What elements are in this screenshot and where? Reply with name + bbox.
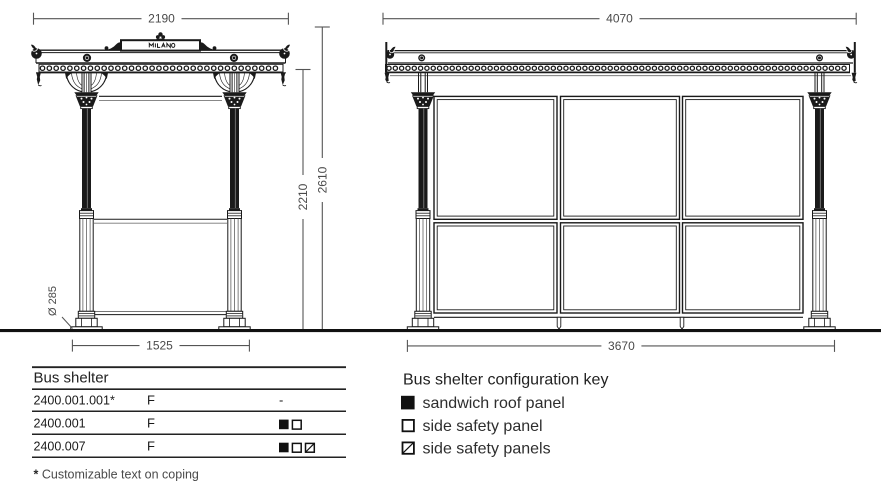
svg-text:Ø 285: Ø 285 <box>47 286 59 316</box>
svg-text:F: F <box>147 416 155 431</box>
svg-text:Bus shelter: Bus shelter <box>34 370 109 387</box>
svg-text:2400.007: 2400.007 <box>34 440 86 454</box>
svg-text:3670: 3670 <box>608 339 635 353</box>
svg-text:2190: 2190 <box>148 12 175 26</box>
svg-text:1525: 1525 <box>146 339 173 353</box>
svg-text:2400.001.001*: 2400.001.001* <box>34 394 115 408</box>
svg-text:F: F <box>147 439 155 454</box>
svg-text:2610: 2610 <box>315 166 329 193</box>
svg-text:* Customizable text on coping: * Customizable text on coping <box>34 468 199 482</box>
svg-text:F: F <box>147 393 155 408</box>
svg-text:4070: 4070 <box>606 12 633 26</box>
svg-text:2400.001: 2400.001 <box>34 417 86 431</box>
svg-text:Bus shelter configuration key: Bus shelter configuration key <box>403 372 608 389</box>
svg-text:2210: 2210 <box>296 183 310 210</box>
svg-text:side safety panel: side safety panel <box>423 418 543 435</box>
svg-text:sandwich roof panel: sandwich roof panel <box>423 395 565 412</box>
svg-text:-: - <box>279 393 283 408</box>
svg-text:side safety panels: side safety panels <box>423 440 551 457</box>
